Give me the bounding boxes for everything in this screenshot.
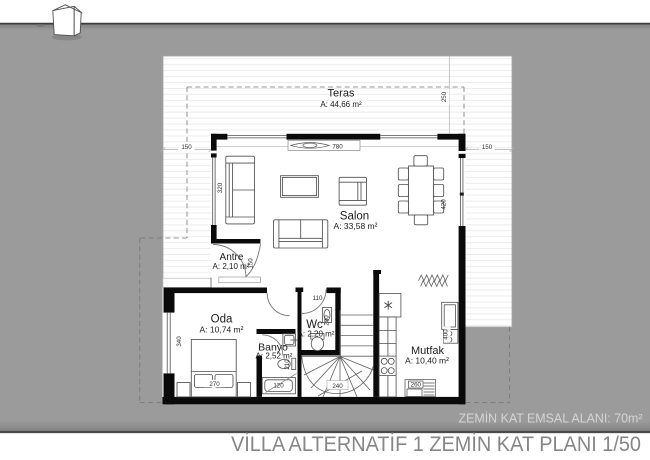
svg-text:A: 2,10 m²: A: 2,10 m² (213, 262, 250, 271)
svg-text:420: 420 (441, 199, 448, 210)
svg-text:780: 780 (332, 143, 343, 150)
svg-text:A: 2,52 m²: A: 2,52 m² (256, 352, 293, 361)
svg-text:150: 150 (181, 144, 192, 151)
svg-text:ZEMİN KAT EMSAL ALANI: 70m²: ZEMİN KAT EMSAL ALANI: 70m² (459, 410, 644, 425)
svg-text:110: 110 (313, 295, 323, 302)
svg-text:A: 10,40 m²: A: 10,40 m² (405, 356, 449, 366)
svg-text:200: 200 (324, 315, 331, 326)
svg-text:150: 150 (482, 144, 493, 151)
svg-text:A: 44,66 m²: A: 44,66 m² (320, 100, 362, 109)
svg-text:320: 320 (217, 182, 224, 193)
svg-text:120: 120 (273, 382, 284, 389)
svg-text:270: 270 (209, 381, 220, 388)
svg-text:260: 260 (411, 382, 422, 389)
svg-text:250: 250 (441, 91, 448, 102)
svg-text:VİLLA ALTERNATİF 1 ZEMİN KAT P: VİLLA ALTERNATİF 1 ZEMİN KAT PLANI 1/50 (231, 433, 641, 456)
svg-text:240: 240 (332, 383, 343, 390)
svg-text:400: 400 (442, 329, 449, 340)
svg-text:A: 10,74 m²: A: 10,74 m² (200, 325, 244, 335)
svg-text:A: 33,58 m²: A: 33,58 m² (334, 221, 378, 231)
svg-text:A: 2,20 m²: A: 2,20 m² (298, 330, 335, 339)
svg-text:340: 340 (176, 336, 183, 347)
svg-text:Teras: Teras (328, 88, 355, 100)
svg-text:150: 150 (248, 258, 255, 269)
svg-text:210: 210 (284, 359, 291, 370)
